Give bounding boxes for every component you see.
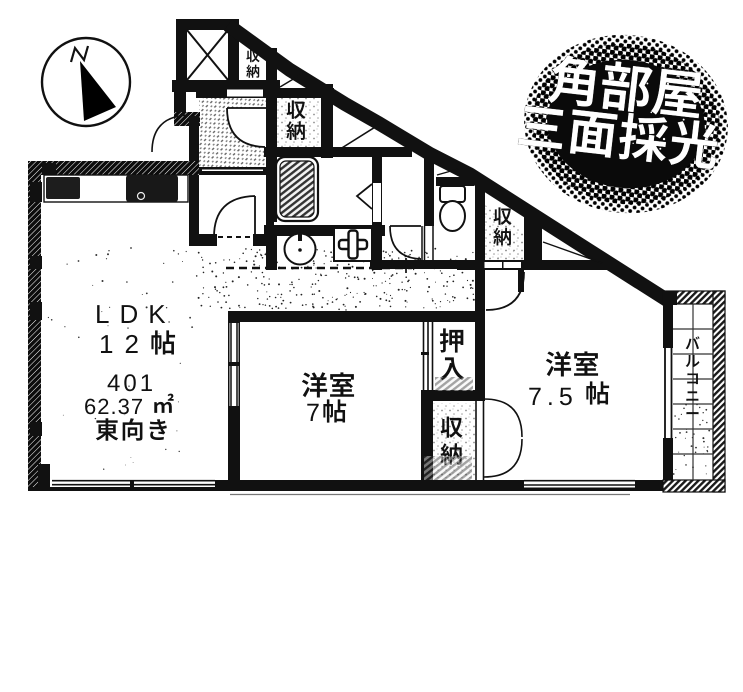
svg-text:LDK: LDK [95, 299, 176, 329]
svg-text:12: 12 [99, 329, 150, 359]
svg-text:7.5: 7.5 [528, 383, 578, 411]
svg-text:401: 401 [107, 370, 156, 397]
svg-text:7: 7 [306, 399, 320, 427]
svg-text:62.37: 62.37 [84, 394, 144, 419]
